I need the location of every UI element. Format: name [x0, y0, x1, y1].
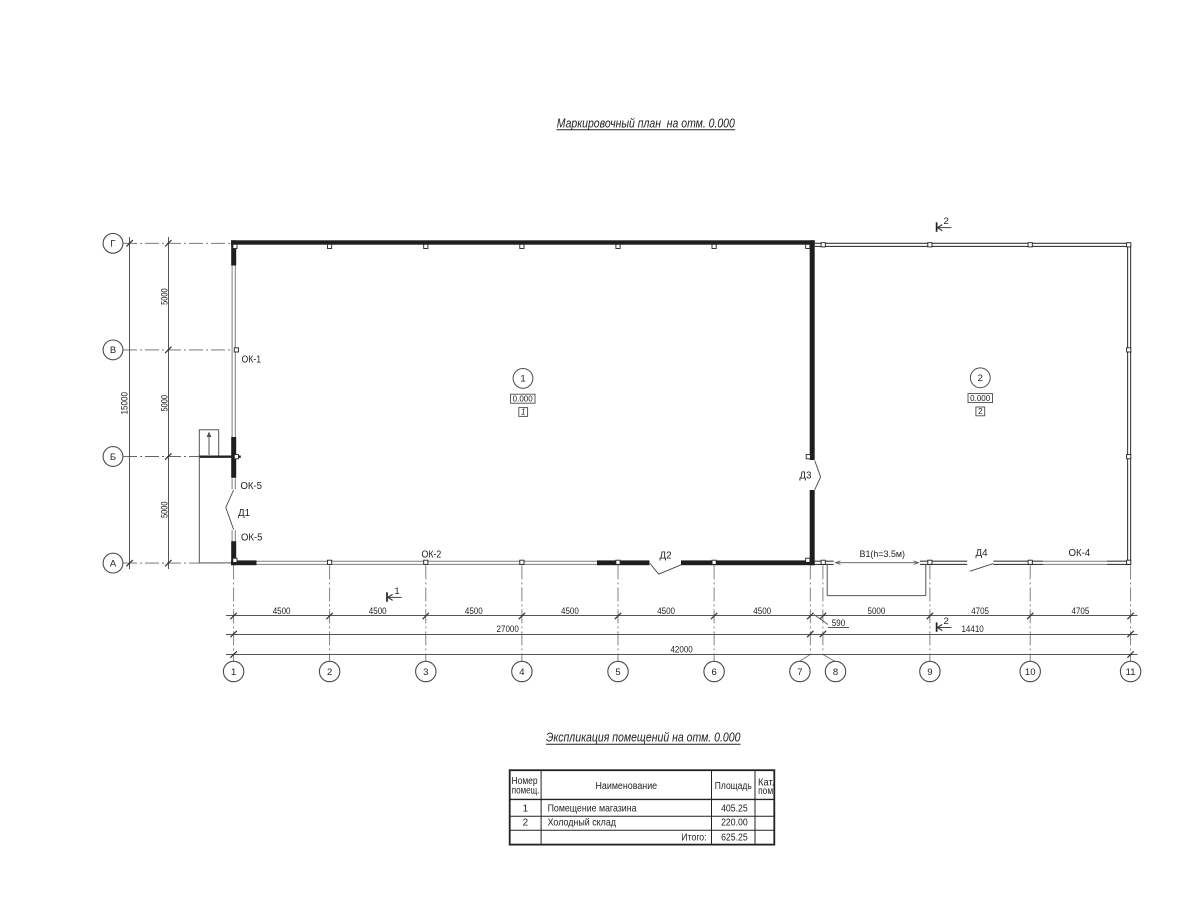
svg-text:1: 1: [231, 667, 236, 678]
svg-text:Площадь: Площадь: [715, 781, 752, 792]
svg-text:ОК-1: ОК-1: [242, 355, 262, 366]
svg-text:ОК-5: ОК-5: [241, 533, 263, 544]
svg-text:4500: 4500: [465, 605, 483, 616]
svg-text:0.000: 0.000: [970, 394, 991, 403]
svg-text:27000: 27000: [497, 623, 519, 634]
svg-text:2: 2: [944, 616, 949, 627]
svg-text:42000: 42000: [670, 644, 692, 655]
svg-text:Маркировочный план на отм. 0.: Маркировочный план на отм. 0.000: [557, 116, 735, 130]
svg-text:ОК-2: ОК-2: [422, 550, 442, 561]
svg-text:Г: Г: [110, 239, 115, 250]
svg-text:14410: 14410: [961, 623, 983, 634]
svg-text:590: 590: [832, 617, 845, 628]
svg-text:3: 3: [423, 667, 428, 678]
svg-text:4500: 4500: [273, 605, 291, 616]
svg-text:6: 6: [711, 667, 716, 678]
svg-text:4500: 4500: [369, 605, 387, 616]
svg-text:Холодный склад: Холодный склад: [548, 818, 617, 829]
svg-text:7: 7: [797, 667, 802, 678]
svg-text:10: 10: [1025, 667, 1036, 678]
svg-text:4500: 4500: [561, 605, 579, 616]
svg-text:4500: 4500: [657, 605, 675, 616]
svg-text:ОК-4: ОК-4: [1069, 548, 1091, 559]
svg-text:5000: 5000: [868, 605, 886, 616]
svg-text:В: В: [110, 345, 116, 356]
svg-text:220.00: 220.00: [721, 818, 748, 829]
svg-text:5000: 5000: [158, 288, 169, 305]
svg-text:4: 4: [519, 667, 524, 678]
svg-text:2: 2: [327, 667, 332, 678]
svg-text:Д2: Д2: [660, 551, 672, 562]
svg-text:Д1: Д1: [238, 508, 250, 519]
svg-text:405.25: 405.25: [721, 804, 748, 815]
svg-text:Экспликация помещений на отм.: Экспликация помещений на отм. 0.000: [546, 730, 740, 744]
svg-text:5000: 5000: [158, 502, 169, 519]
svg-text:15000: 15000: [119, 392, 130, 415]
svg-text:9: 9: [927, 667, 932, 678]
svg-text:В1(h=3.5м): В1(h=3.5м): [860, 548, 906, 559]
svg-text:пом.: пом.: [758, 786, 775, 797]
svg-text:1: 1: [394, 586, 399, 597]
svg-text:1: 1: [523, 804, 528, 815]
svg-text:2: 2: [978, 373, 983, 384]
svg-text:0.000: 0.000: [513, 394, 534, 403]
svg-text:4500: 4500: [753, 605, 771, 616]
svg-text:ОК-5: ОК-5: [241, 481, 263, 492]
svg-text:Итого:: Итого:: [681, 833, 706, 844]
svg-text:2: 2: [523, 818, 528, 829]
svg-text:4705: 4705: [1072, 605, 1090, 616]
svg-text:Д4: Д4: [976, 548, 989, 559]
svg-text:Помещение магазина: Помещение магазина: [548, 804, 637, 815]
svg-text:11: 11: [1126, 667, 1136, 678]
svg-text:625.25: 625.25: [721, 833, 748, 844]
svg-text:1: 1: [520, 374, 525, 385]
svg-text:1: 1: [521, 408, 525, 417]
svg-text:5000: 5000: [158, 395, 169, 412]
svg-text:Наименование: Наименование: [596, 781, 658, 792]
svg-text:Д3: Д3: [799, 471, 812, 482]
svg-text:8: 8: [833, 667, 838, 678]
svg-text:2: 2: [944, 216, 949, 227]
svg-text:4705: 4705: [971, 605, 989, 616]
svg-text:2: 2: [978, 407, 983, 416]
svg-text:помещ.: помещ.: [512, 786, 540, 797]
svg-text:А: А: [110, 558, 117, 569]
svg-text:5: 5: [615, 667, 620, 678]
svg-text:Б: Б: [110, 452, 116, 463]
